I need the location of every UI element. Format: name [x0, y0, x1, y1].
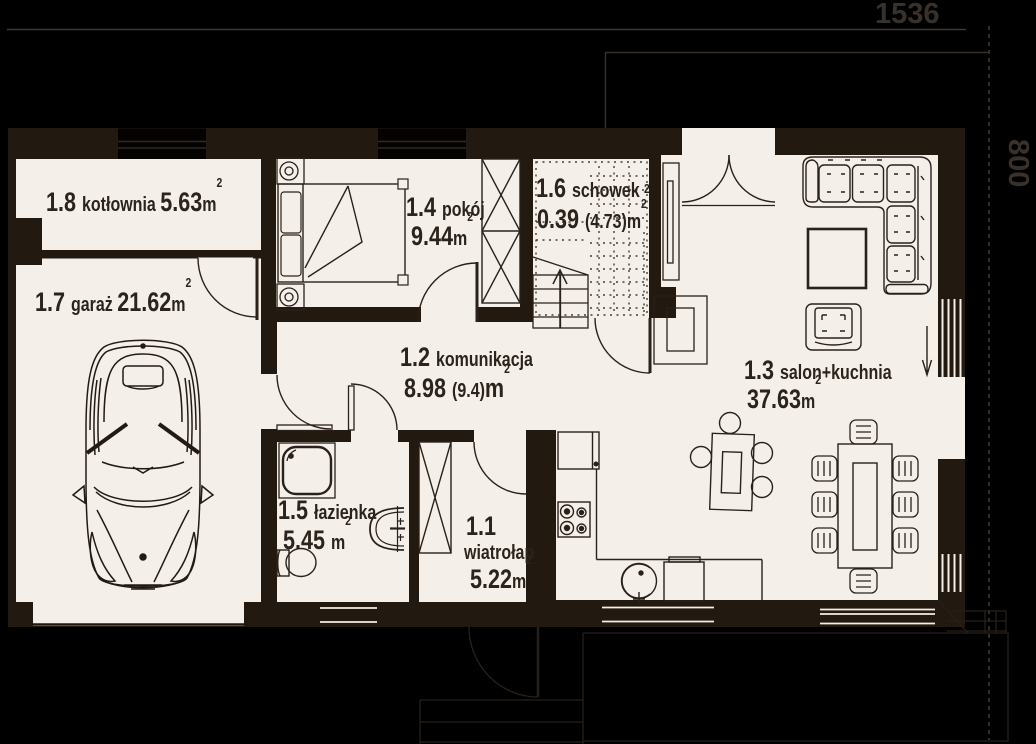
svg-text:1536: 1536 — [875, 0, 940, 30]
svg-text:1.1: 1.1 — [466, 512, 496, 542]
svg-text:800: 800 — [1002, 139, 1034, 187]
svg-text:wiatrołap: wiatrołap — [463, 541, 534, 563]
